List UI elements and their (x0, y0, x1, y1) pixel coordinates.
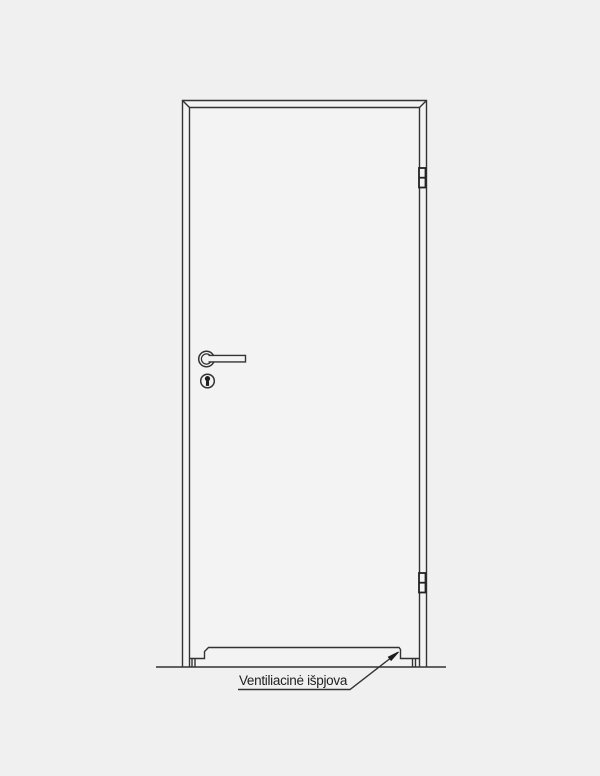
keyhole-escutcheon (201, 374, 215, 388)
handle-lever-bar (209, 355, 246, 362)
door-leaf (183, 101, 427, 668)
technical-drawing-door-ventilation: Ventiliacinė išpjova (0, 0, 600, 776)
bottom-hinge (419, 573, 426, 593)
ventilation-cutout-label: Ventiliacinė išpjova (239, 673, 348, 688)
top-hinge (419, 168, 426, 188)
door-drawing-svg: Ventiliacinė išpjova (0, 0, 600, 776)
keyhole-cylinder-stem (206, 380, 209, 386)
